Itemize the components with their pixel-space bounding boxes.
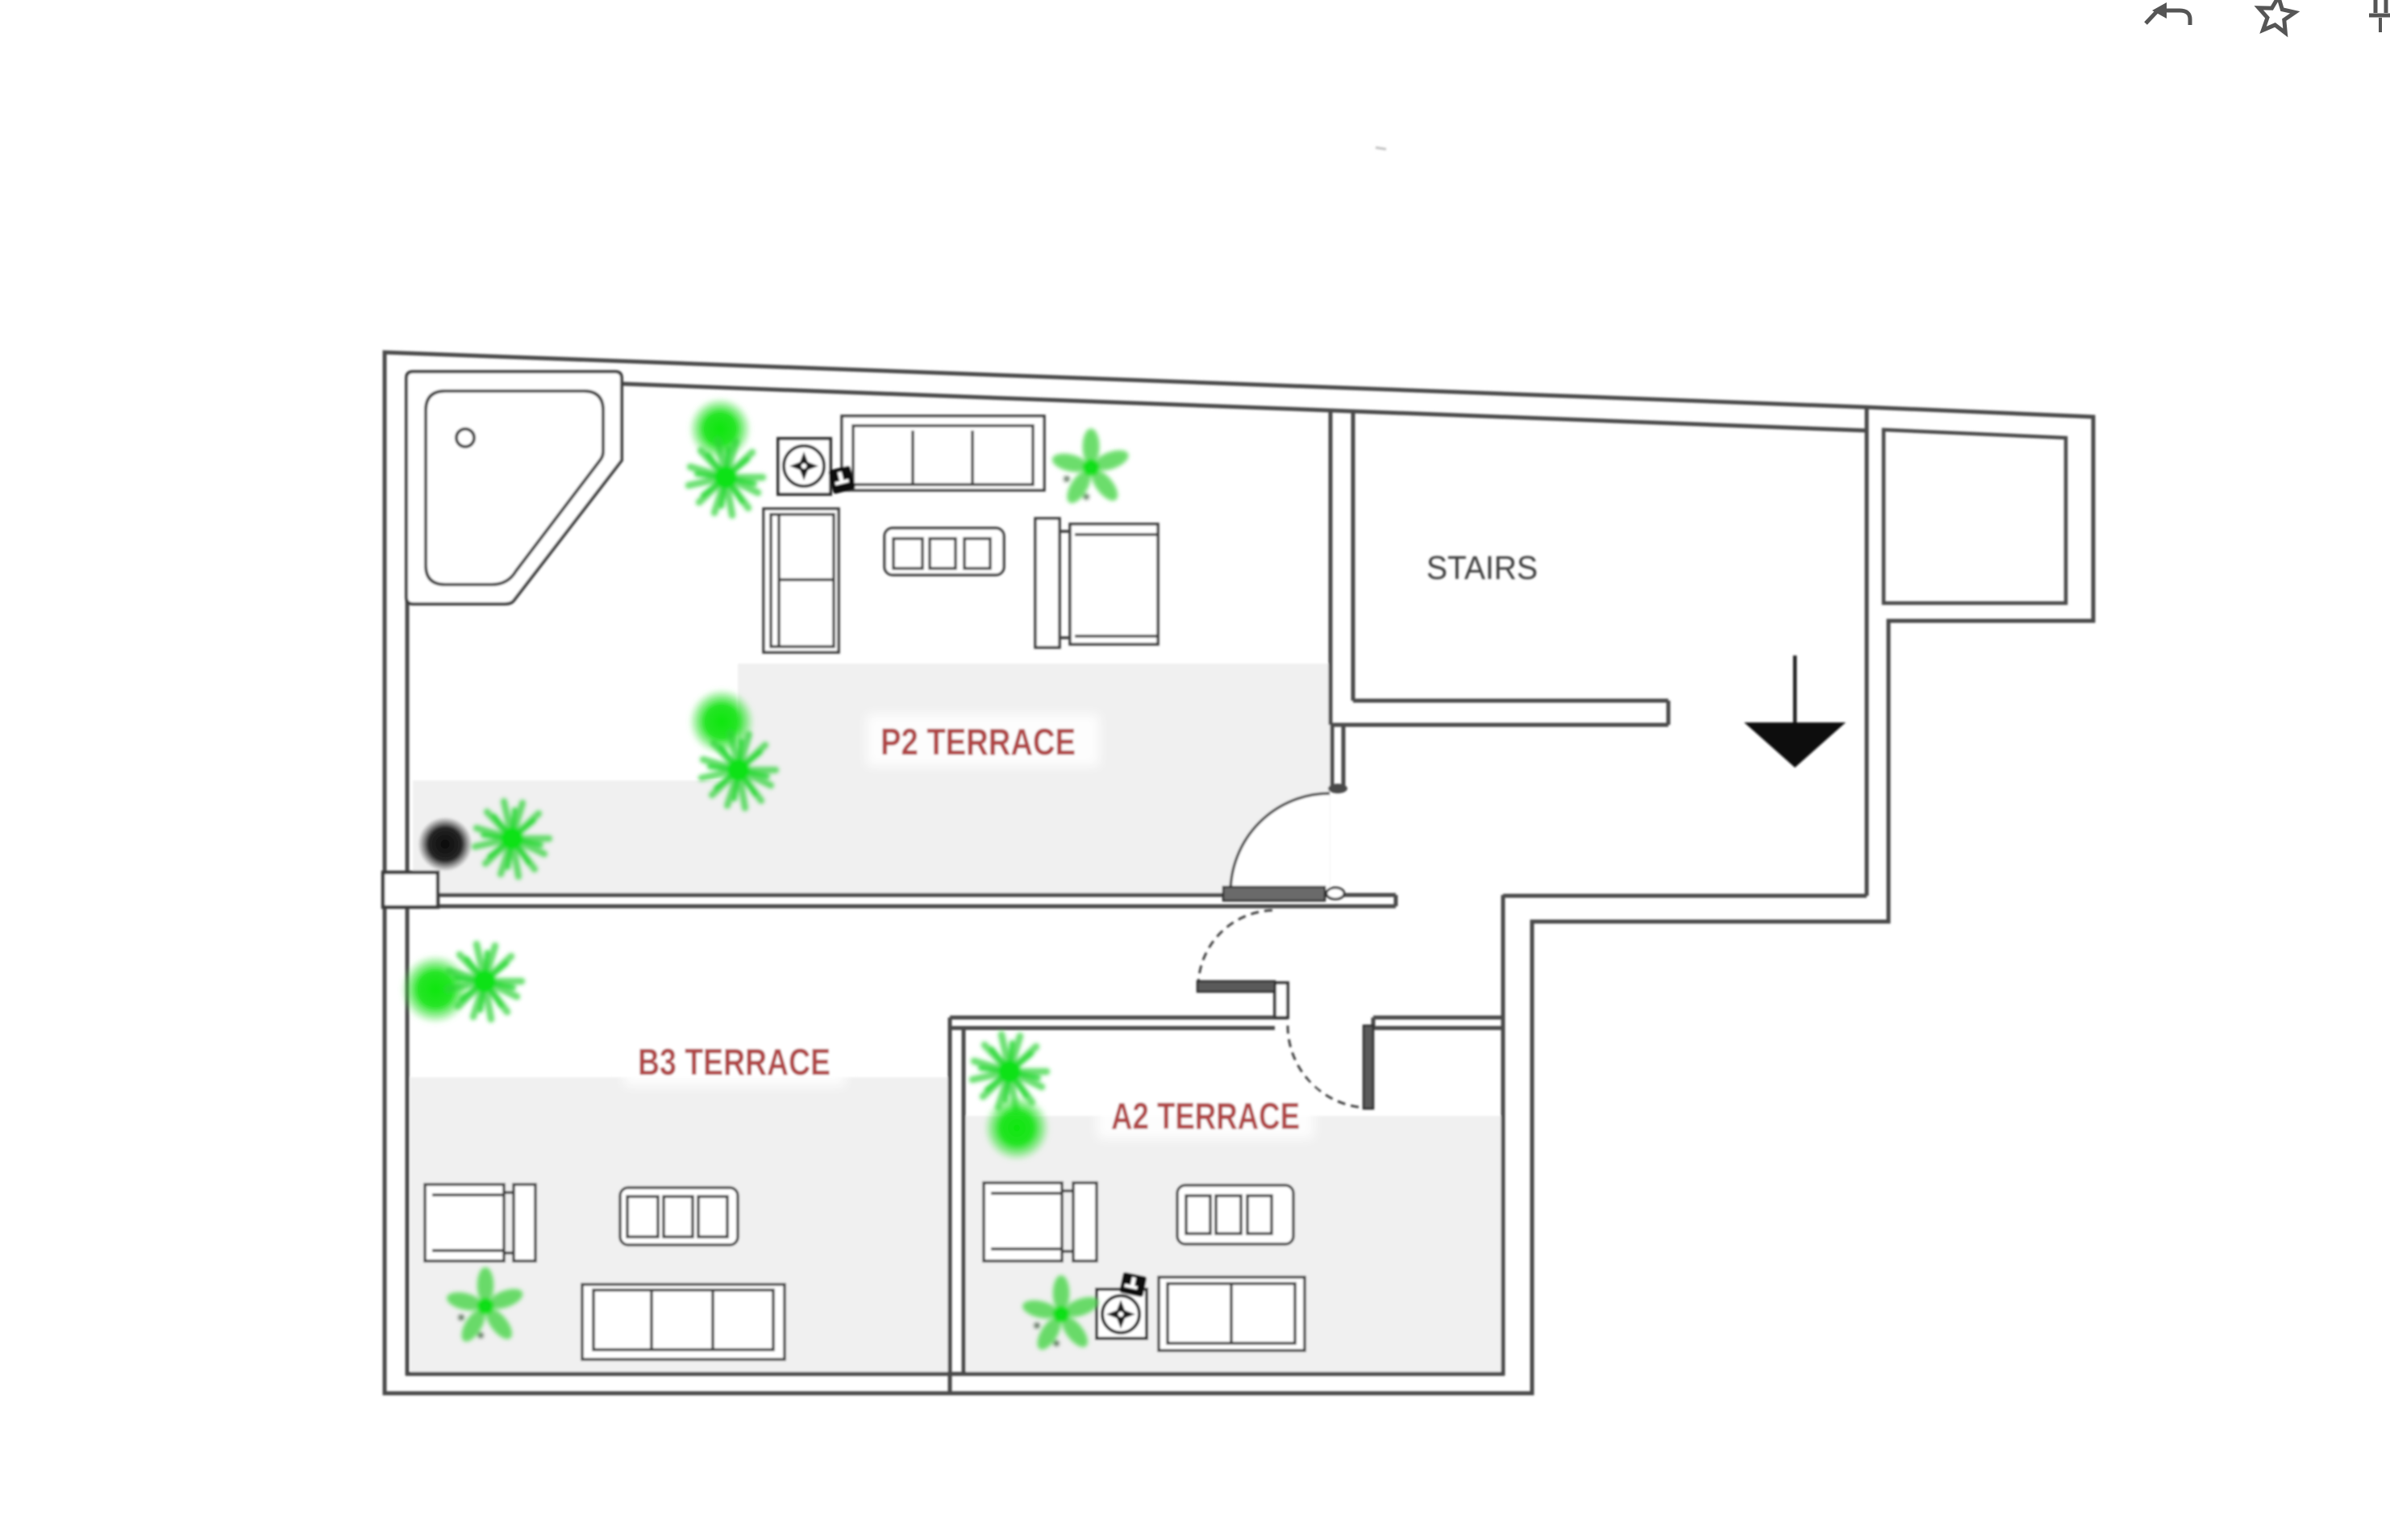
svg-text:P2 TERRACE: P2 TERRACE — [881, 721, 1076, 763]
svg-text:STAIRS: STAIRS — [1426, 549, 1538, 586]
svg-text:A2 TERRACE: A2 TERRACE — [1111, 1095, 1300, 1137]
svg-text:B3 TERRACE: B3 TERRACE — [638, 1041, 831, 1083]
